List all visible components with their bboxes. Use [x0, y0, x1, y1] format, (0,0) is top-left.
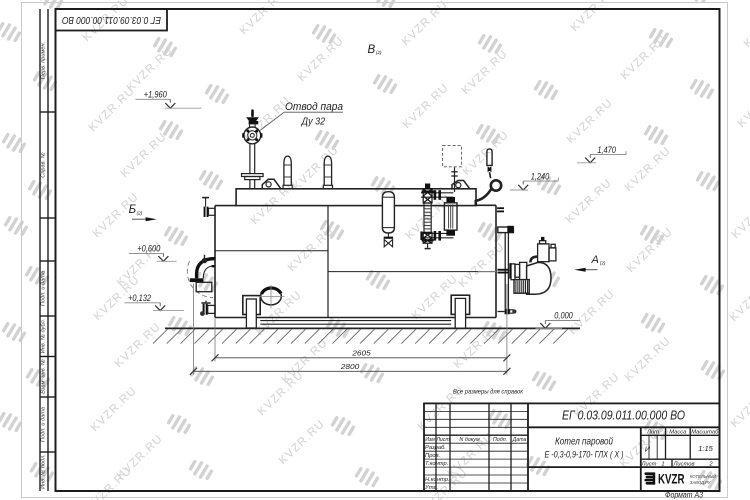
svg-text:1,470: 1,470 — [597, 145, 616, 155]
svg-text:Листов: Листов — [672, 462, 694, 468]
svg-text:Пров.: Пров. — [425, 453, 440, 459]
svg-text:А: А — [591, 254, 599, 266]
svg-text:ЕГ 0.03.09.011.00.000 ВО: ЕГ 0.03.09.011.00.000 ВО — [562, 408, 685, 423]
svg-text:Лист: Лист — [435, 437, 450, 443]
svg-text:1,240: 1,240 — [531, 172, 550, 182]
svg-text:(2): (2) — [376, 50, 382, 55]
svg-text:Инв. № дубл.: Инв. № дубл. — [41, 319, 47, 353]
svg-text:Подп. и дата: Подп. и дата — [41, 271, 47, 306]
svg-text:+1,960: +1,960 — [144, 90, 167, 100]
svg-text:+0,600: +0,600 — [137, 244, 160, 254]
svg-text:Е -0,3-0,9-170- ГЛХ ( Х ): Е -0,3-0,9-170- ГЛХ ( Х ) — [545, 450, 624, 460]
svg-text:Формат А3: Формат А3 — [665, 491, 704, 500]
svg-text:Изм: Изм — [425, 437, 435, 443]
svg-text:Взам. инв. №: Взам. инв. № — [41, 359, 47, 394]
svg-text:Масса: Масса — [669, 430, 687, 436]
svg-text:Утв.: Утв. — [424, 485, 438, 491]
svg-text:Т.контр.: Т.контр. — [425, 461, 448, 467]
svg-text:+0,132: +0,132 — [128, 293, 151, 303]
svg-text:Масштаб: Масштаб — [691, 430, 719, 436]
svg-text:КОТЕЛЬНЫЙ: КОТЕЛЬНЫЙ — [690, 474, 716, 479]
svg-text:Б: Б — [129, 204, 137, 216]
svg-text:0,000: 0,000 — [554, 311, 573, 321]
svg-text:В: В — [368, 44, 376, 56]
svg-text:Дата: Дата — [512, 437, 527, 443]
svg-text:Лит: Лит — [646, 430, 659, 436]
svg-text:Перв. примен.: Перв. примен. — [41, 42, 47, 79]
svg-text:Все размеры для справок: Все размеры для справок — [453, 388, 524, 396]
svg-text:Разраб.: Разраб. — [425, 445, 446, 451]
svg-text:Инв. № подл.: Инв. № подл. — [41, 454, 47, 489]
svg-text:KVZR: KVZR — [658, 472, 685, 487]
svg-text:N докум: N докум — [459, 437, 480, 443]
svg-text:Подп.: Подп. — [493, 437, 507, 443]
svg-text:2800: 2800 — [340, 362, 360, 371]
svg-text:1:15: 1:15 — [698, 444, 713, 453]
svg-text:ЕГ 0.03.09.011.00.000 ВО: ЕГ 0.03.09.011.00.000 ВО — [62, 14, 161, 26]
svg-text:1: 1 — [661, 462, 664, 468]
svg-text:2605: 2605 — [351, 348, 372, 357]
svg-text:(2): (2) — [600, 260, 606, 265]
svg-text:И: И — [645, 445, 651, 454]
svg-text:ЗАВОД.РУ: ЗАВОД.РУ — [690, 480, 712, 485]
svg-text:Отвод пара: Отвод пара — [285, 101, 343, 113]
svg-text:Ду 32: Ду 32 — [301, 117, 326, 128]
svg-text:Лист: Лист — [641, 462, 657, 468]
svg-text:Подп. и дата: Подп. и дата — [41, 407, 47, 442]
svg-text:Котел паровой: Котел паровой — [555, 437, 613, 448]
svg-text:(2): (2) — [137, 211, 143, 216]
svg-text:Справ. №: Справ. № — [41, 152, 47, 177]
svg-text:Н.контр.: Н.контр. — [425, 477, 450, 483]
